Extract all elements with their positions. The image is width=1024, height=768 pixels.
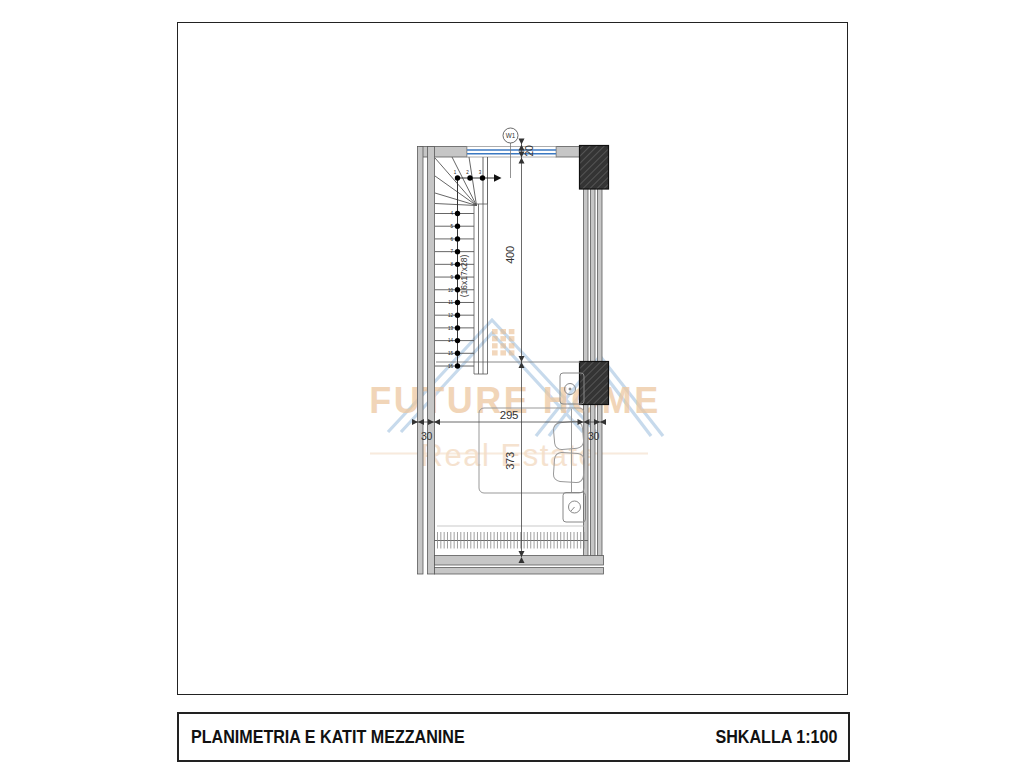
svg-text:2: 2 [466, 170, 469, 175]
window-w1 [467, 147, 556, 158]
floor-plan-drawing: FUTURE HOME Real Estate [0, 0, 1024, 768]
left-wall-inner [428, 147, 435, 575]
svg-text:3: 3 [479, 170, 482, 175]
bottom-wall-bar2 [435, 568, 604, 575]
dim-window-thickness: 20 [523, 145, 535, 157]
dim-right-wall: 30 [588, 430, 600, 442]
walk-line-arrow [494, 174, 502, 182]
svg-text:13: 13 [448, 326, 454, 331]
right-wall [584, 189, 589, 363]
window-tag-label: W1 [506, 132, 516, 139]
winder-treads [435, 157, 477, 206]
dim-lower-length: 373 [504, 452, 516, 470]
drawing-title: PLANIMETRIA E KATIT MEZZANINE [179, 727, 465, 748]
staircase: 12345678910111213141516 (16x17x28) [435, 157, 502, 374]
top-wall-right [556, 147, 581, 158]
title-bar: PLANIMETRIA E KATIT MEZZANINE SHKALLA 1:… [177, 712, 850, 762]
watermark: FUTURE HOME Real Estate [369, 320, 663, 473]
svg-text:11: 11 [448, 300, 453, 305]
drawing-scale: SHKALLA 1:100 [716, 727, 848, 748]
svg-text:12: 12 [448, 313, 454, 318]
svg-text:16: 16 [448, 364, 454, 369]
dim-left-wall: 30 [421, 430, 433, 442]
svg-text:1: 1 [454, 170, 457, 175]
column-top-right [580, 146, 609, 190]
svg-text:15: 15 [448, 351, 454, 356]
bottom-wall-bar1 [435, 556, 604, 566]
top-wall-left [420, 147, 467, 158]
balustrade [434, 526, 588, 549]
dim-room-width: 295 [500, 409, 518, 421]
stair-size-label: (16x17x28) [459, 255, 469, 298]
svg-text:10: 10 [448, 288, 454, 293]
svg-text:14: 14 [448, 338, 454, 343]
nightstand-clock [563, 493, 586, 523]
right-wall [598, 405, 603, 557]
right-wall [591, 405, 596, 557]
right-wall [591, 189, 596, 363]
dim-upper-length: 400 [504, 246, 516, 264]
left-wall-outer [418, 147, 424, 575]
right-wall [598, 189, 603, 363]
